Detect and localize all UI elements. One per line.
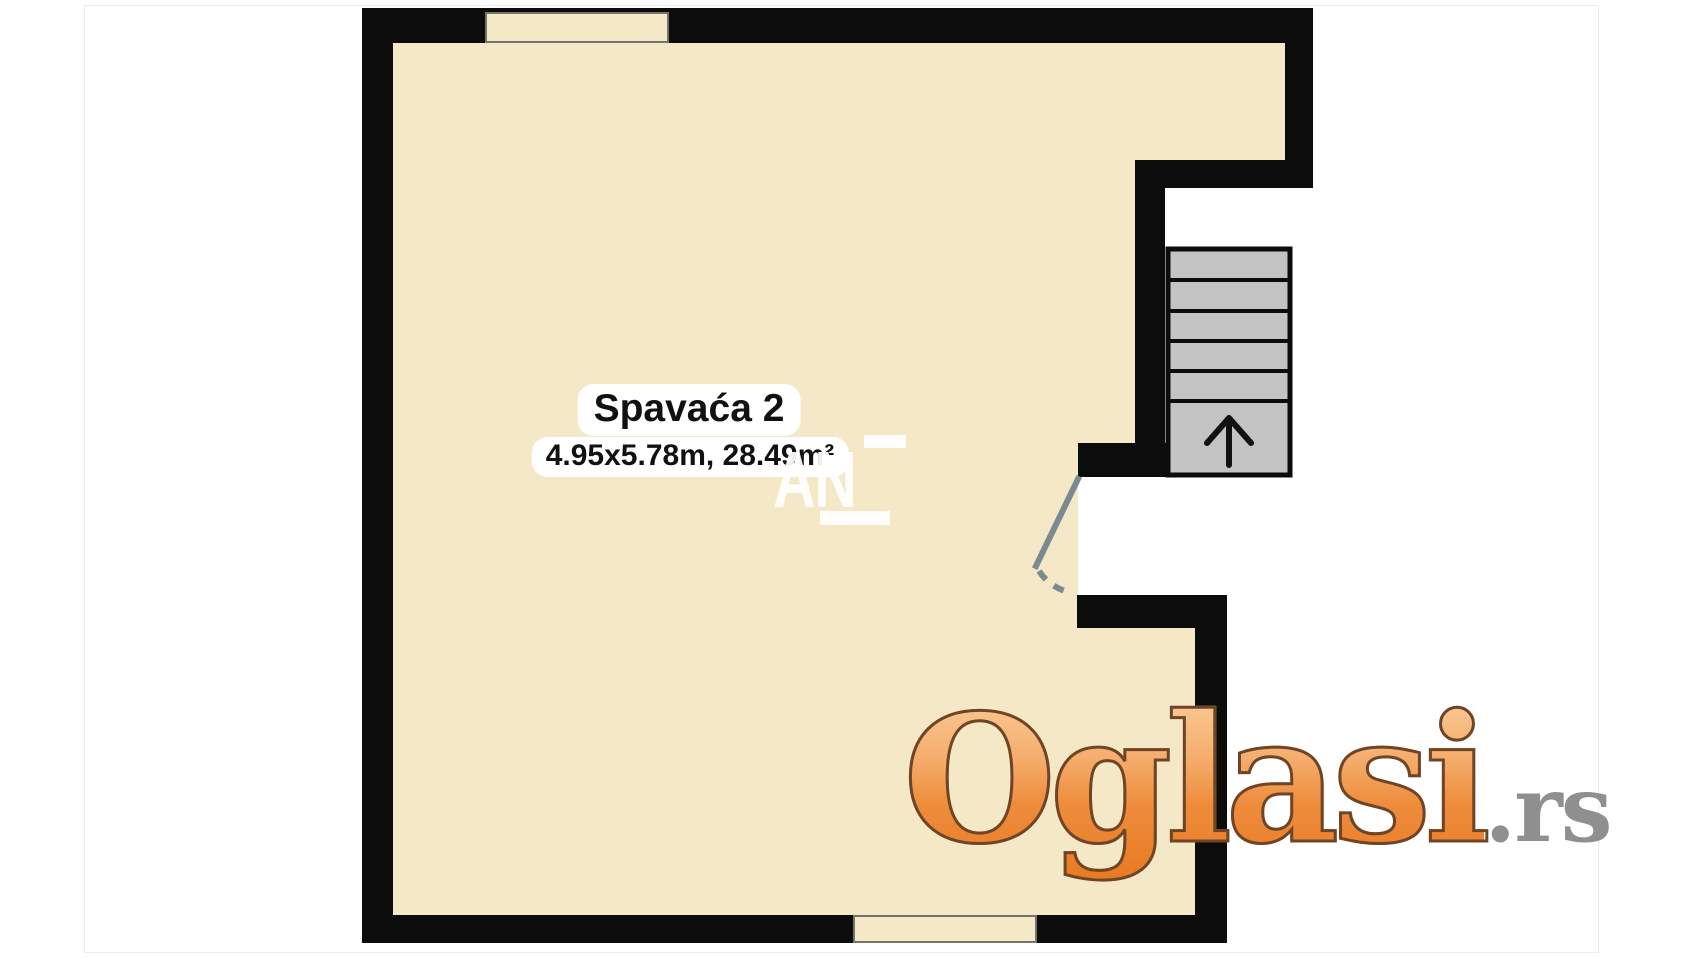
window-top bbox=[486, 13, 668, 42]
site-logo: Oglasi.rs bbox=[903, 692, 1611, 868]
agency-watermark-bar bbox=[864, 435, 906, 448]
window-bottom bbox=[854, 916, 1036, 942]
site-logo-wordmark: Oglasi bbox=[903, 676, 1484, 883]
floor-plan-canvas: Spavaća 2 4.95x5.78m, 28.49m² AN Oglasi.… bbox=[0, 0, 1683, 958]
room-name-label: Spavaća 2 bbox=[578, 384, 801, 436]
site-logo-tld: .rs bbox=[1484, 755, 1610, 863]
wall-door-header-stub bbox=[1078, 443, 1166, 477]
agency-watermark: AN bbox=[773, 440, 856, 520]
agency-watermark-underline bbox=[820, 511, 890, 525]
staircase bbox=[1168, 249, 1290, 475]
wall-bottom bbox=[362, 915, 1227, 943]
wall-left bbox=[362, 8, 393, 943]
wall-mid-vertical bbox=[1135, 160, 1165, 477]
